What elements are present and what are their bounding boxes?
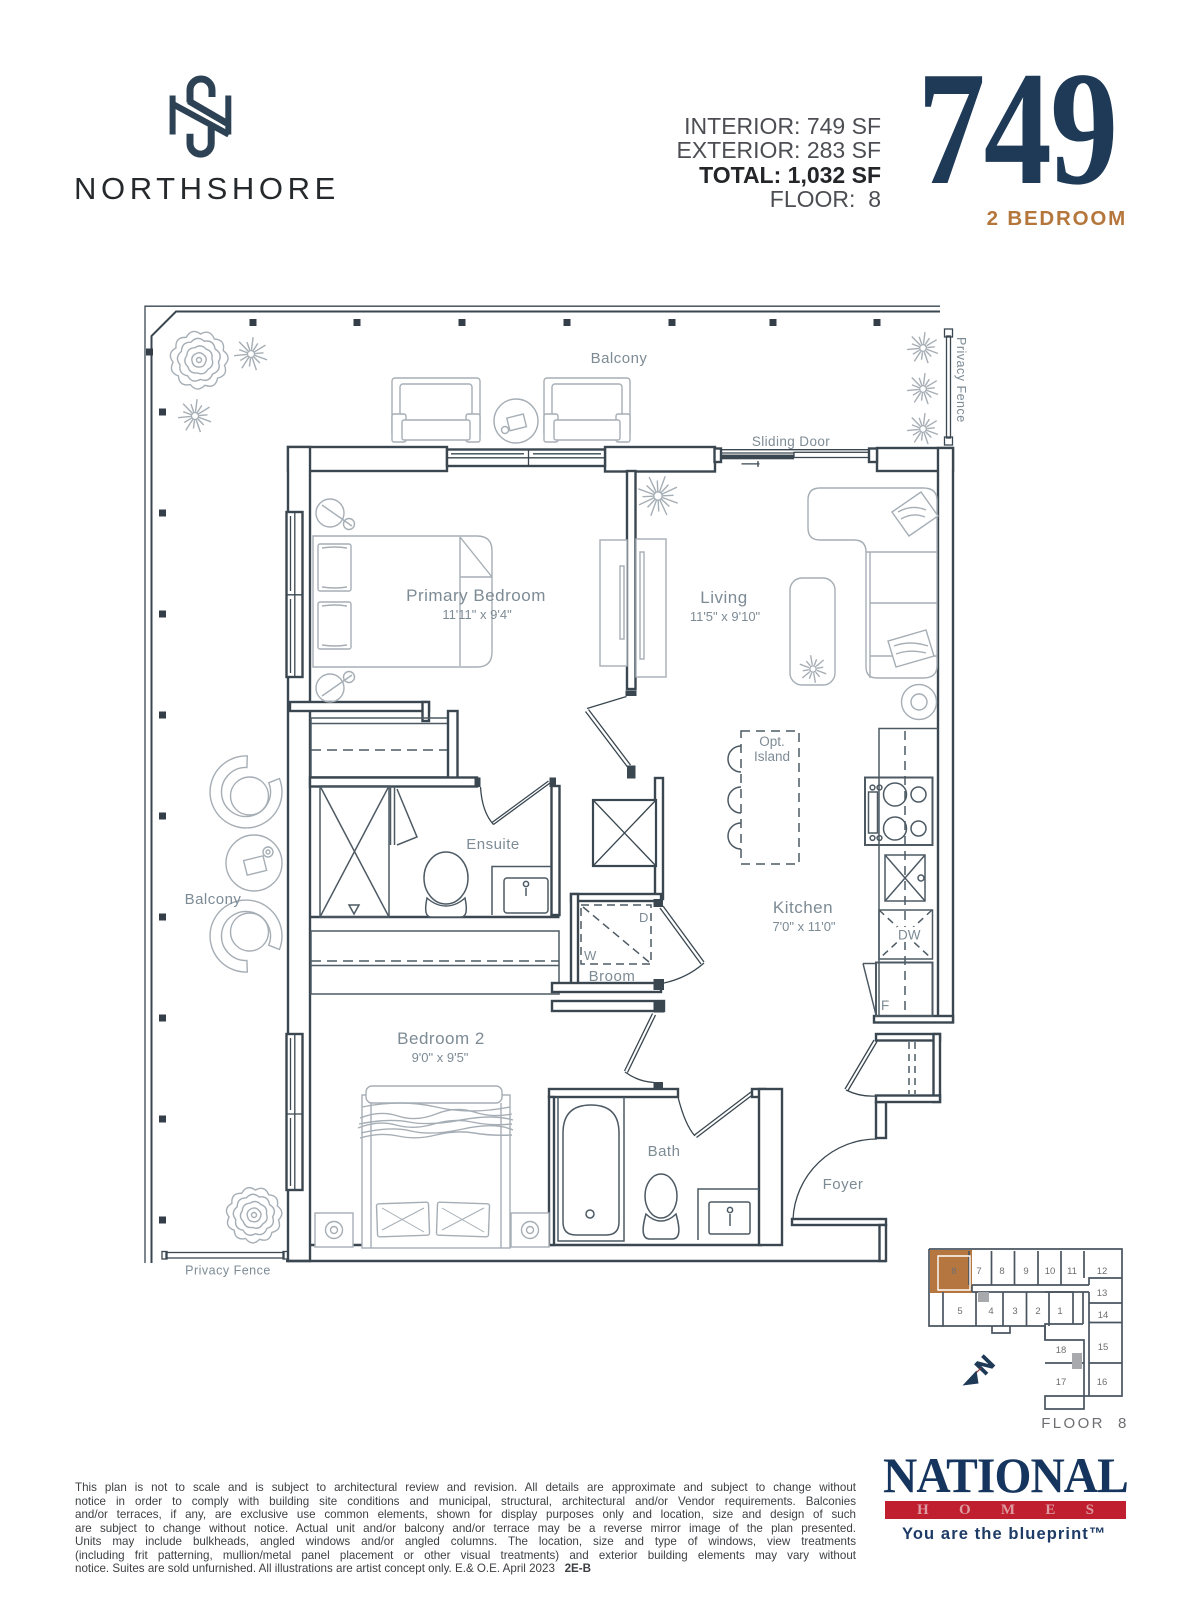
svg-text:12: 12 [1097,1266,1108,1277]
svg-text:D: D [639,910,648,925]
svg-text:11'11" x 9'4": 11'11" x 9'4" [442,607,512,622]
svg-text:18: 18 [1056,1345,1067,1356]
svg-text:W: W [584,948,597,963]
svg-text:Opt.: Opt. [759,734,785,749]
svg-text:FLOOR 8: FLOOR 8 [1041,1415,1129,1432]
svg-text:13: 13 [1097,1288,1108,1299]
svg-text:Kitchen: Kitchen [773,898,833,917]
svg-text:Foyer: Foyer [823,1176,864,1193]
svg-text:11'5" x 9'10": 11'5" x 9'10" [690,609,761,624]
svg-text:Sliding Door: Sliding Door [752,434,830,449]
svg-text:16: 16 [1097,1377,1108,1388]
svg-text:7'0" x 11'0": 7'0" x 11'0" [772,919,835,934]
svg-text:2: 2 [1035,1306,1040,1317]
svg-text:4: 4 [988,1306,993,1317]
svg-text:17: 17 [1056,1377,1067,1388]
svg-text:DW: DW [898,928,921,943]
svg-text:Island: Island [754,749,790,764]
svg-text:14: 14 [1098,1310,1109,1321]
svg-text:F: F [881,998,889,1013]
svg-text:9: 9 [1023,1266,1028,1277]
svg-text:Broom: Broom [589,968,636,985]
svg-text:15: 15 [1098,1342,1109,1353]
svg-text:8: 8 [951,1266,956,1277]
svg-text:Balcony: Balcony [591,350,648,367]
svg-text:Bedroom 2: Bedroom 2 [397,1029,485,1048]
svg-text:Ensuite: Ensuite [466,836,520,853]
svg-text:Balcony: Balcony [185,891,242,908]
svg-text:3: 3 [1012,1306,1017,1317]
svg-text:Bath: Bath [648,1143,681,1160]
svg-text:Privacy Fence: Privacy Fence [954,337,968,423]
svg-text:1: 1 [1057,1306,1062,1317]
svg-text:9'0" x 9'5": 9'0" x 9'5" [412,1050,469,1065]
svg-text:8: 8 [999,1266,1004,1277]
svg-text:10: 10 [1045,1266,1056,1277]
svg-text:7: 7 [976,1266,981,1277]
svg-text:Living: Living [700,588,747,607]
svg-text:Privacy Fence: Privacy Fence [185,1264,271,1278]
svg-text:Primary Bedroom: Primary Bedroom [406,586,546,605]
svg-text:11: 11 [1067,1266,1077,1277]
svg-text:5: 5 [957,1306,962,1317]
